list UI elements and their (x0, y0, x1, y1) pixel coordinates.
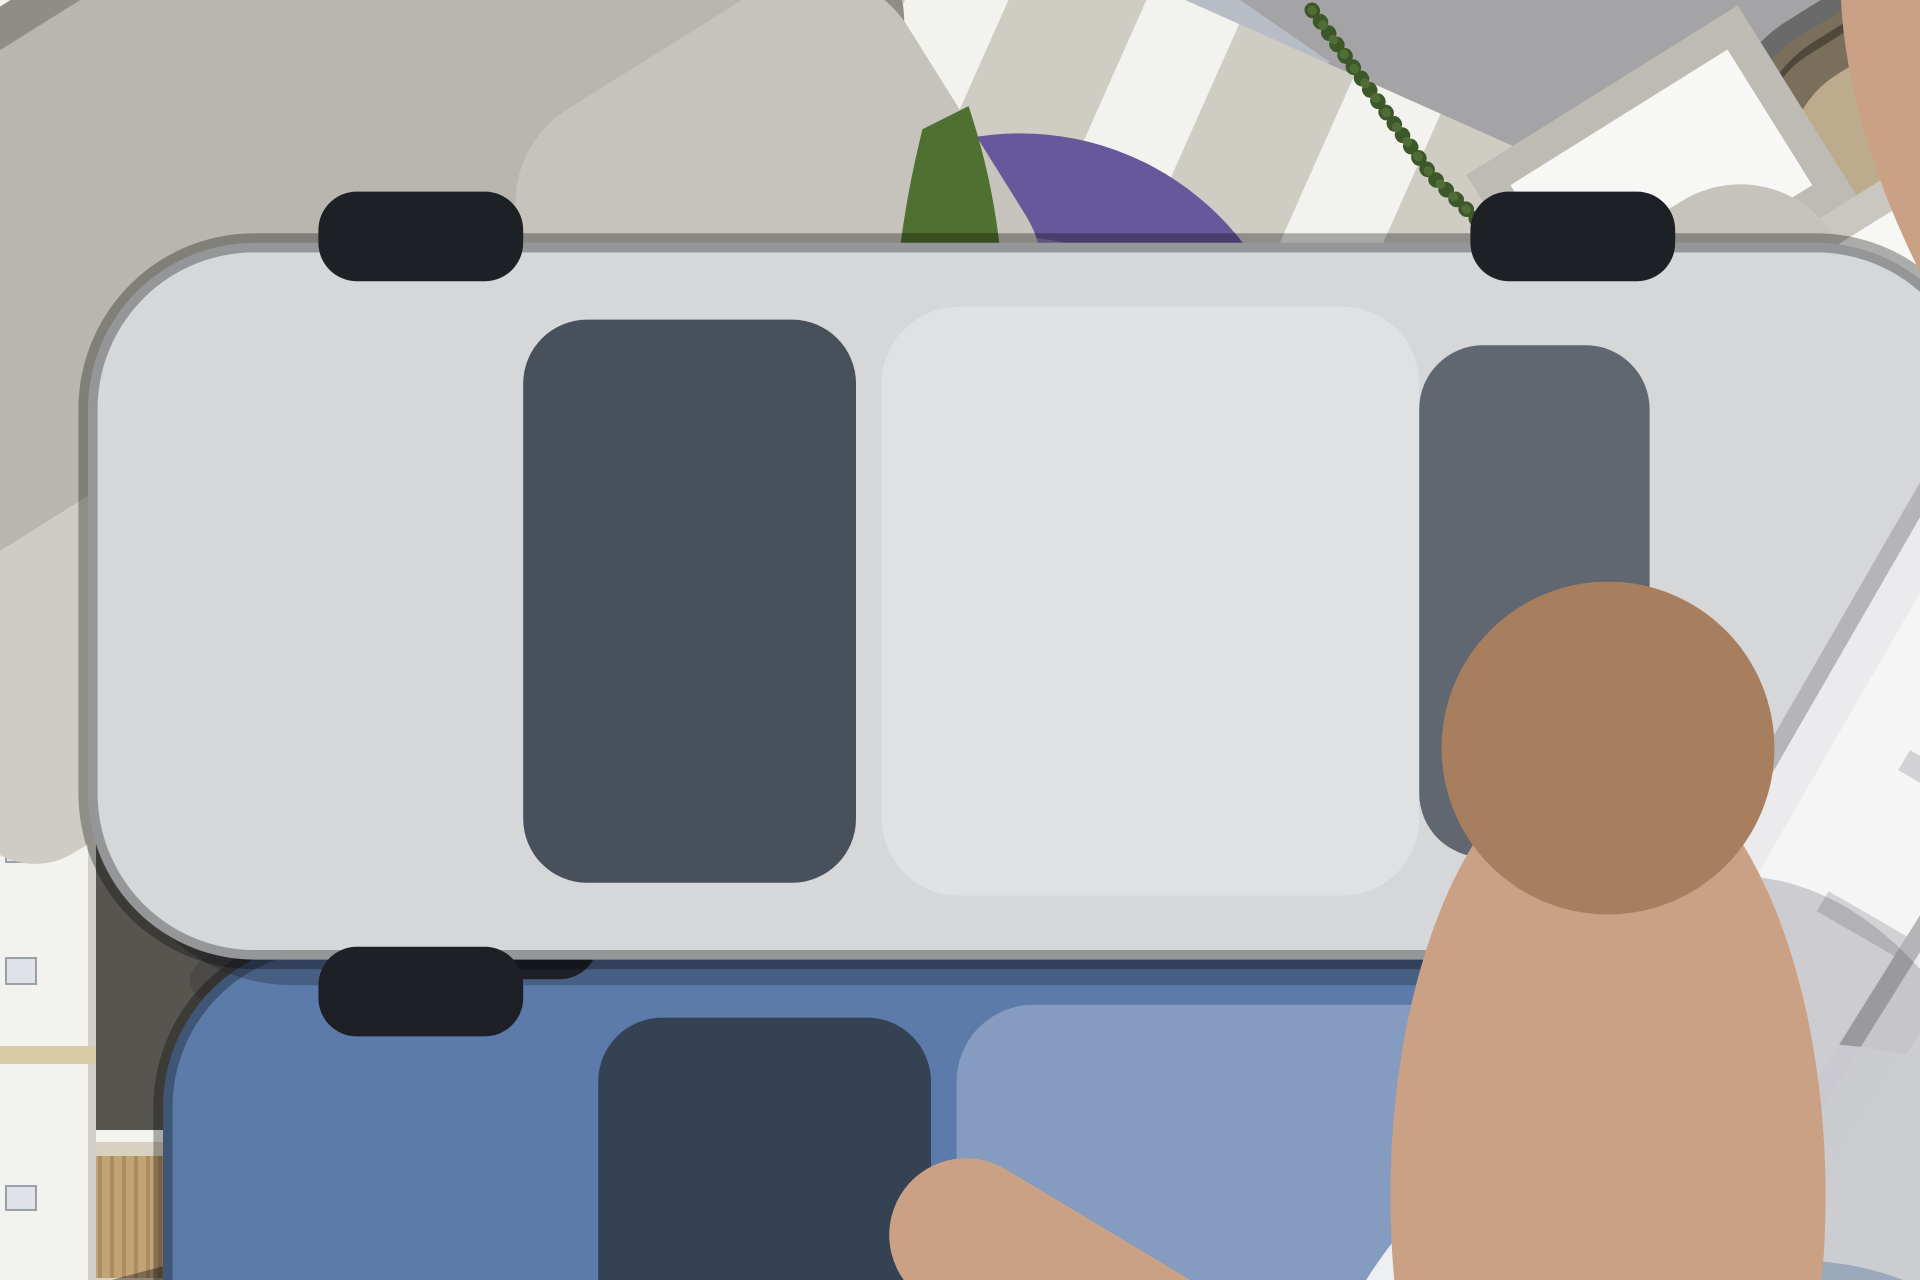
aerial-render-of-residential-complex (0, 0, 1920, 1280)
scene-canvas (0, 0, 1920, 1280)
coping-3 (0, 1046, 96, 1064)
